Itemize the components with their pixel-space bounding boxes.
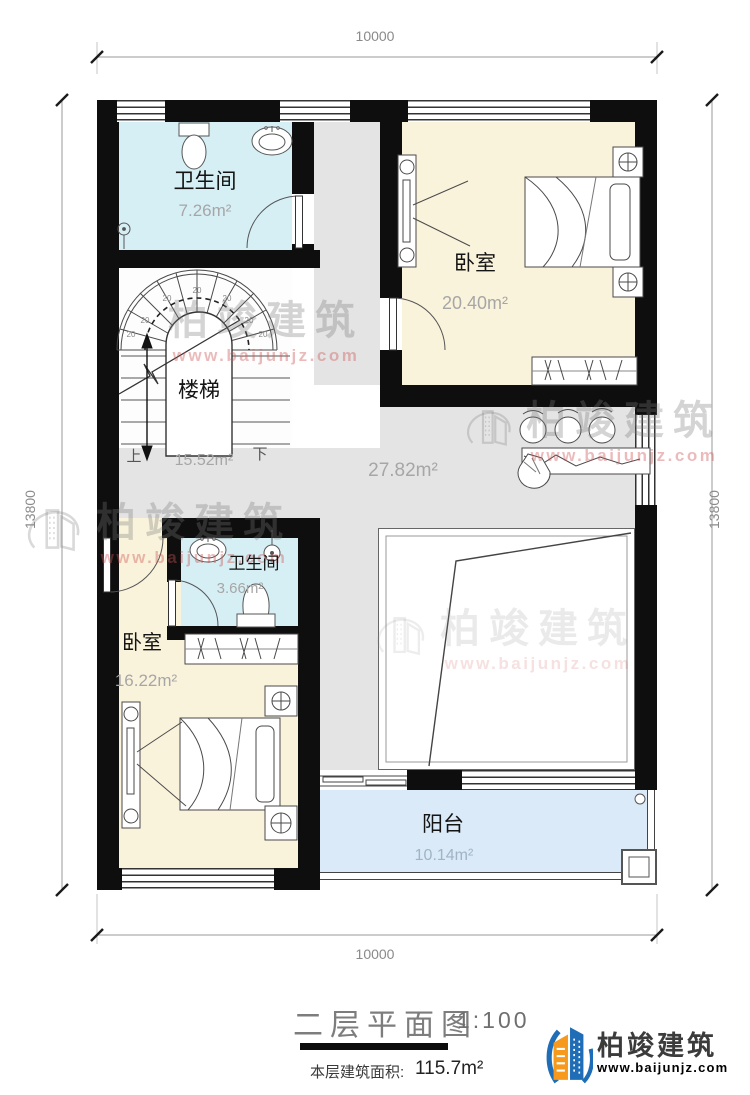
window-top-bedroom1 [408, 100, 590, 122]
balcony-railing-right [647, 790, 655, 878]
brand-logo-icon [545, 1018, 593, 1086]
wall-top-seg [590, 100, 657, 122]
stairs-down-label: 下 [248, 447, 272, 464]
balcony-area: 10.14m² [403, 847, 485, 865]
drawing-title: 二层平面图 [293, 1000, 478, 1044]
dimension-right: 13800 [706, 455, 722, 565]
floor-area-label: 本层建筑面积: [310, 1061, 404, 1082]
bedroom2-label: 卧室 [110, 632, 174, 654]
title-underline [300, 1043, 448, 1050]
bathroom1-area: 7.26m² [150, 202, 260, 221]
bedroom1-area: 20.40m² [420, 294, 530, 314]
wall-top-seg [350, 100, 408, 122]
floor-area-value: 115.7m² [415, 1058, 483, 1080]
window-right-hall [635, 415, 657, 505]
balcony-label: 阳台 [405, 813, 481, 836]
window-top-bathroom1 [117, 100, 165, 122]
hall-area: 27.82m² [358, 461, 448, 482]
wall-balcony-top-mid [407, 770, 462, 790]
wall-balcony-top-corner [635, 770, 657, 790]
wall-bathroom1-right-a [292, 122, 314, 194]
wall-right-lower [635, 505, 657, 770]
wall-bedroom2-top-a [97, 518, 107, 538]
stairs-label: 楼梯 [167, 379, 231, 402]
stairs-up-label: 上 [122, 449, 146, 466]
dimension-top: 10000 [340, 28, 410, 44]
wall-right-upper [635, 122, 657, 415]
sliding-door-balcony [320, 776, 407, 786]
bedroom2-area: 16.22m² [100, 672, 192, 691]
wall-bedroom1-bottom [380, 385, 657, 407]
wall-bedroom1-left-a [380, 122, 402, 298]
wall-top-seg [97, 100, 119, 122]
wall-bottom-seg [97, 868, 122, 890]
void-opening [378, 528, 635, 770]
wall-bedroom2-right [298, 518, 320, 868]
dimension-bottom: 10000 [340, 946, 410, 962]
bedroom1-label: 卧室 [430, 252, 520, 275]
wall-bedroom1-left-b [380, 350, 402, 387]
wall-top-seg [165, 100, 280, 122]
wall-left [97, 100, 119, 890]
balcony-railing-bottom [320, 872, 657, 880]
wall-bottom-seg [274, 868, 320, 890]
wall-bathroom2-left [167, 538, 181, 582]
window-balcony-top [462, 770, 635, 790]
drawing-scale: 1:100 [457, 1007, 530, 1034]
stairwell-floor [119, 268, 292, 448]
stairs-area: 15.52m² [158, 452, 250, 470]
window-bottom-bedroom2 [122, 868, 274, 890]
hall-floor-right [380, 407, 635, 448]
bathroom2-area: 3.66m² [205, 581, 275, 598]
bathroom2-label: 卫生间 [212, 555, 296, 574]
window-top-corridor [280, 100, 350, 122]
floorplan-page: { "dimensions": {"top":"10000","bottom":… [0, 0, 750, 1095]
wall-bathroom1-right-b [292, 244, 314, 252]
corridor-vert-floor [320, 528, 378, 770]
wall-bedroom2-top-b [162, 518, 320, 538]
brand-url: www.baijunjz.com [597, 1060, 728, 1075]
bathroom1-label: 卫生间 [145, 170, 265, 193]
brand-name: 柏竣建筑 [597, 1024, 717, 1063]
corridor-top-floor [314, 122, 380, 385]
wall-bathroom1-bottom [97, 250, 320, 268]
dimension-left: 13800 [22, 455, 38, 565]
